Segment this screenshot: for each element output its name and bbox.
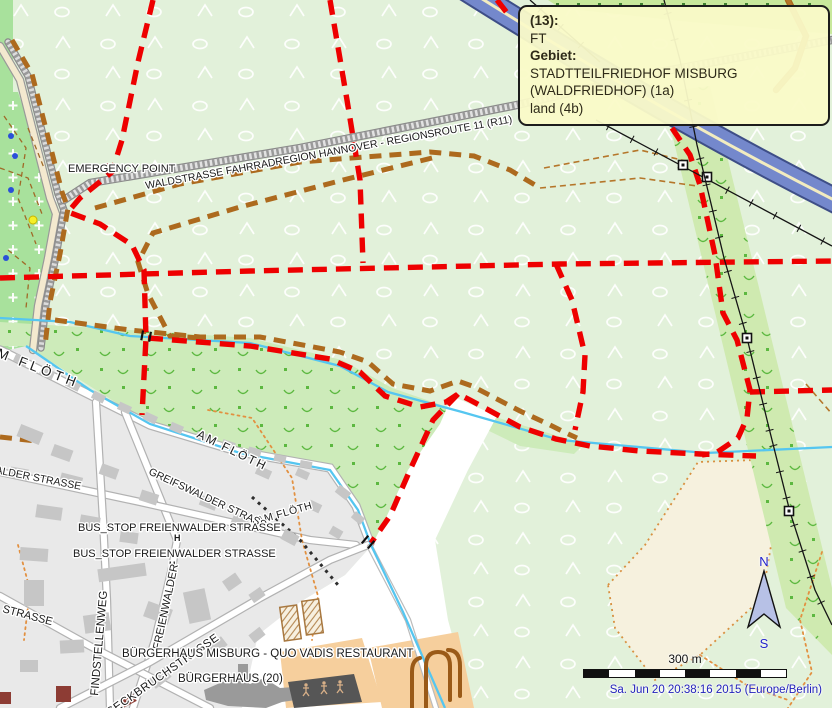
label-bus-stop-1: BUS_STOP FREIENWALDER STRASSE	[78, 522, 281, 534]
building	[0, 692, 11, 704]
compass-rose: N S	[736, 554, 792, 651]
power-pylon-dot	[706, 176, 709, 179]
power-pylon-dot	[788, 510, 791, 513]
tooltip-id: (13):	[530, 12, 818, 30]
building	[60, 639, 85, 653]
power-pylon-dot	[746, 337, 749, 340]
building	[56, 686, 71, 702]
compass-south-label: S	[736, 636, 792, 651]
info-tooltip: (13): FT Gebiet: STADTTEILFRIEDHOF MISBU…	[518, 5, 830, 126]
pedestrian-icon	[304, 683, 307, 686]
compass-north-label: N	[736, 554, 792, 569]
greenhouse-structure	[302, 599, 324, 635]
poi-dot	[29, 216, 37, 224]
compass-needle-icon	[736, 569, 792, 633]
tooltip-type: FT	[530, 30, 818, 48]
tooltip-gebiet-label: Gebiet:	[530, 47, 818, 65]
label-bus-stop-2: BUS_STOP FREIENWALDER STRASSE	[73, 548, 276, 560]
building	[20, 547, 49, 562]
scale-bar-segments	[583, 669, 787, 678]
scale-label: 300 m	[583, 652, 787, 666]
greenhouse-structure	[280, 605, 302, 641]
label-emergency-point: EMERGENCY POINT	[68, 163, 176, 175]
water-point-dot	[3, 255, 9, 261]
building	[20, 660, 38, 672]
label-buergerhaus-quovadis: BÜRGERHAUS MISBURG - QUO VADIS RESTAURAN…	[122, 648, 414, 660]
tooltip-gebiet-value: STADTTEILFRIEDHOF MISBURG (WALDFRIEDHOF)…	[530, 65, 818, 100]
bus-stop-icon: H	[174, 533, 181, 543]
power-pylon-dot	[682, 164, 685, 167]
map-window: HHEMERGENCY POINTWALDSTRASSE FAHRRADREGI…	[0, 0, 832, 708]
pedestrian-icon	[338, 680, 341, 683]
water-point-dot	[8, 133, 14, 139]
building	[24, 580, 44, 606]
water-point-dot	[12, 153, 18, 159]
pedestrian-icon	[322, 681, 325, 684]
water-point-dot	[8, 187, 14, 193]
tooltip-land-value: land (4b)	[530, 100, 818, 118]
scale-bar: 300 m	[583, 652, 787, 678]
label-buergerhaus-20: BÜRGERHAUS (20)	[178, 673, 283, 685]
status-timestamp: Sa. Jun 20 20:38:16 2015 (Europe/Berlin)	[500, 684, 822, 696]
